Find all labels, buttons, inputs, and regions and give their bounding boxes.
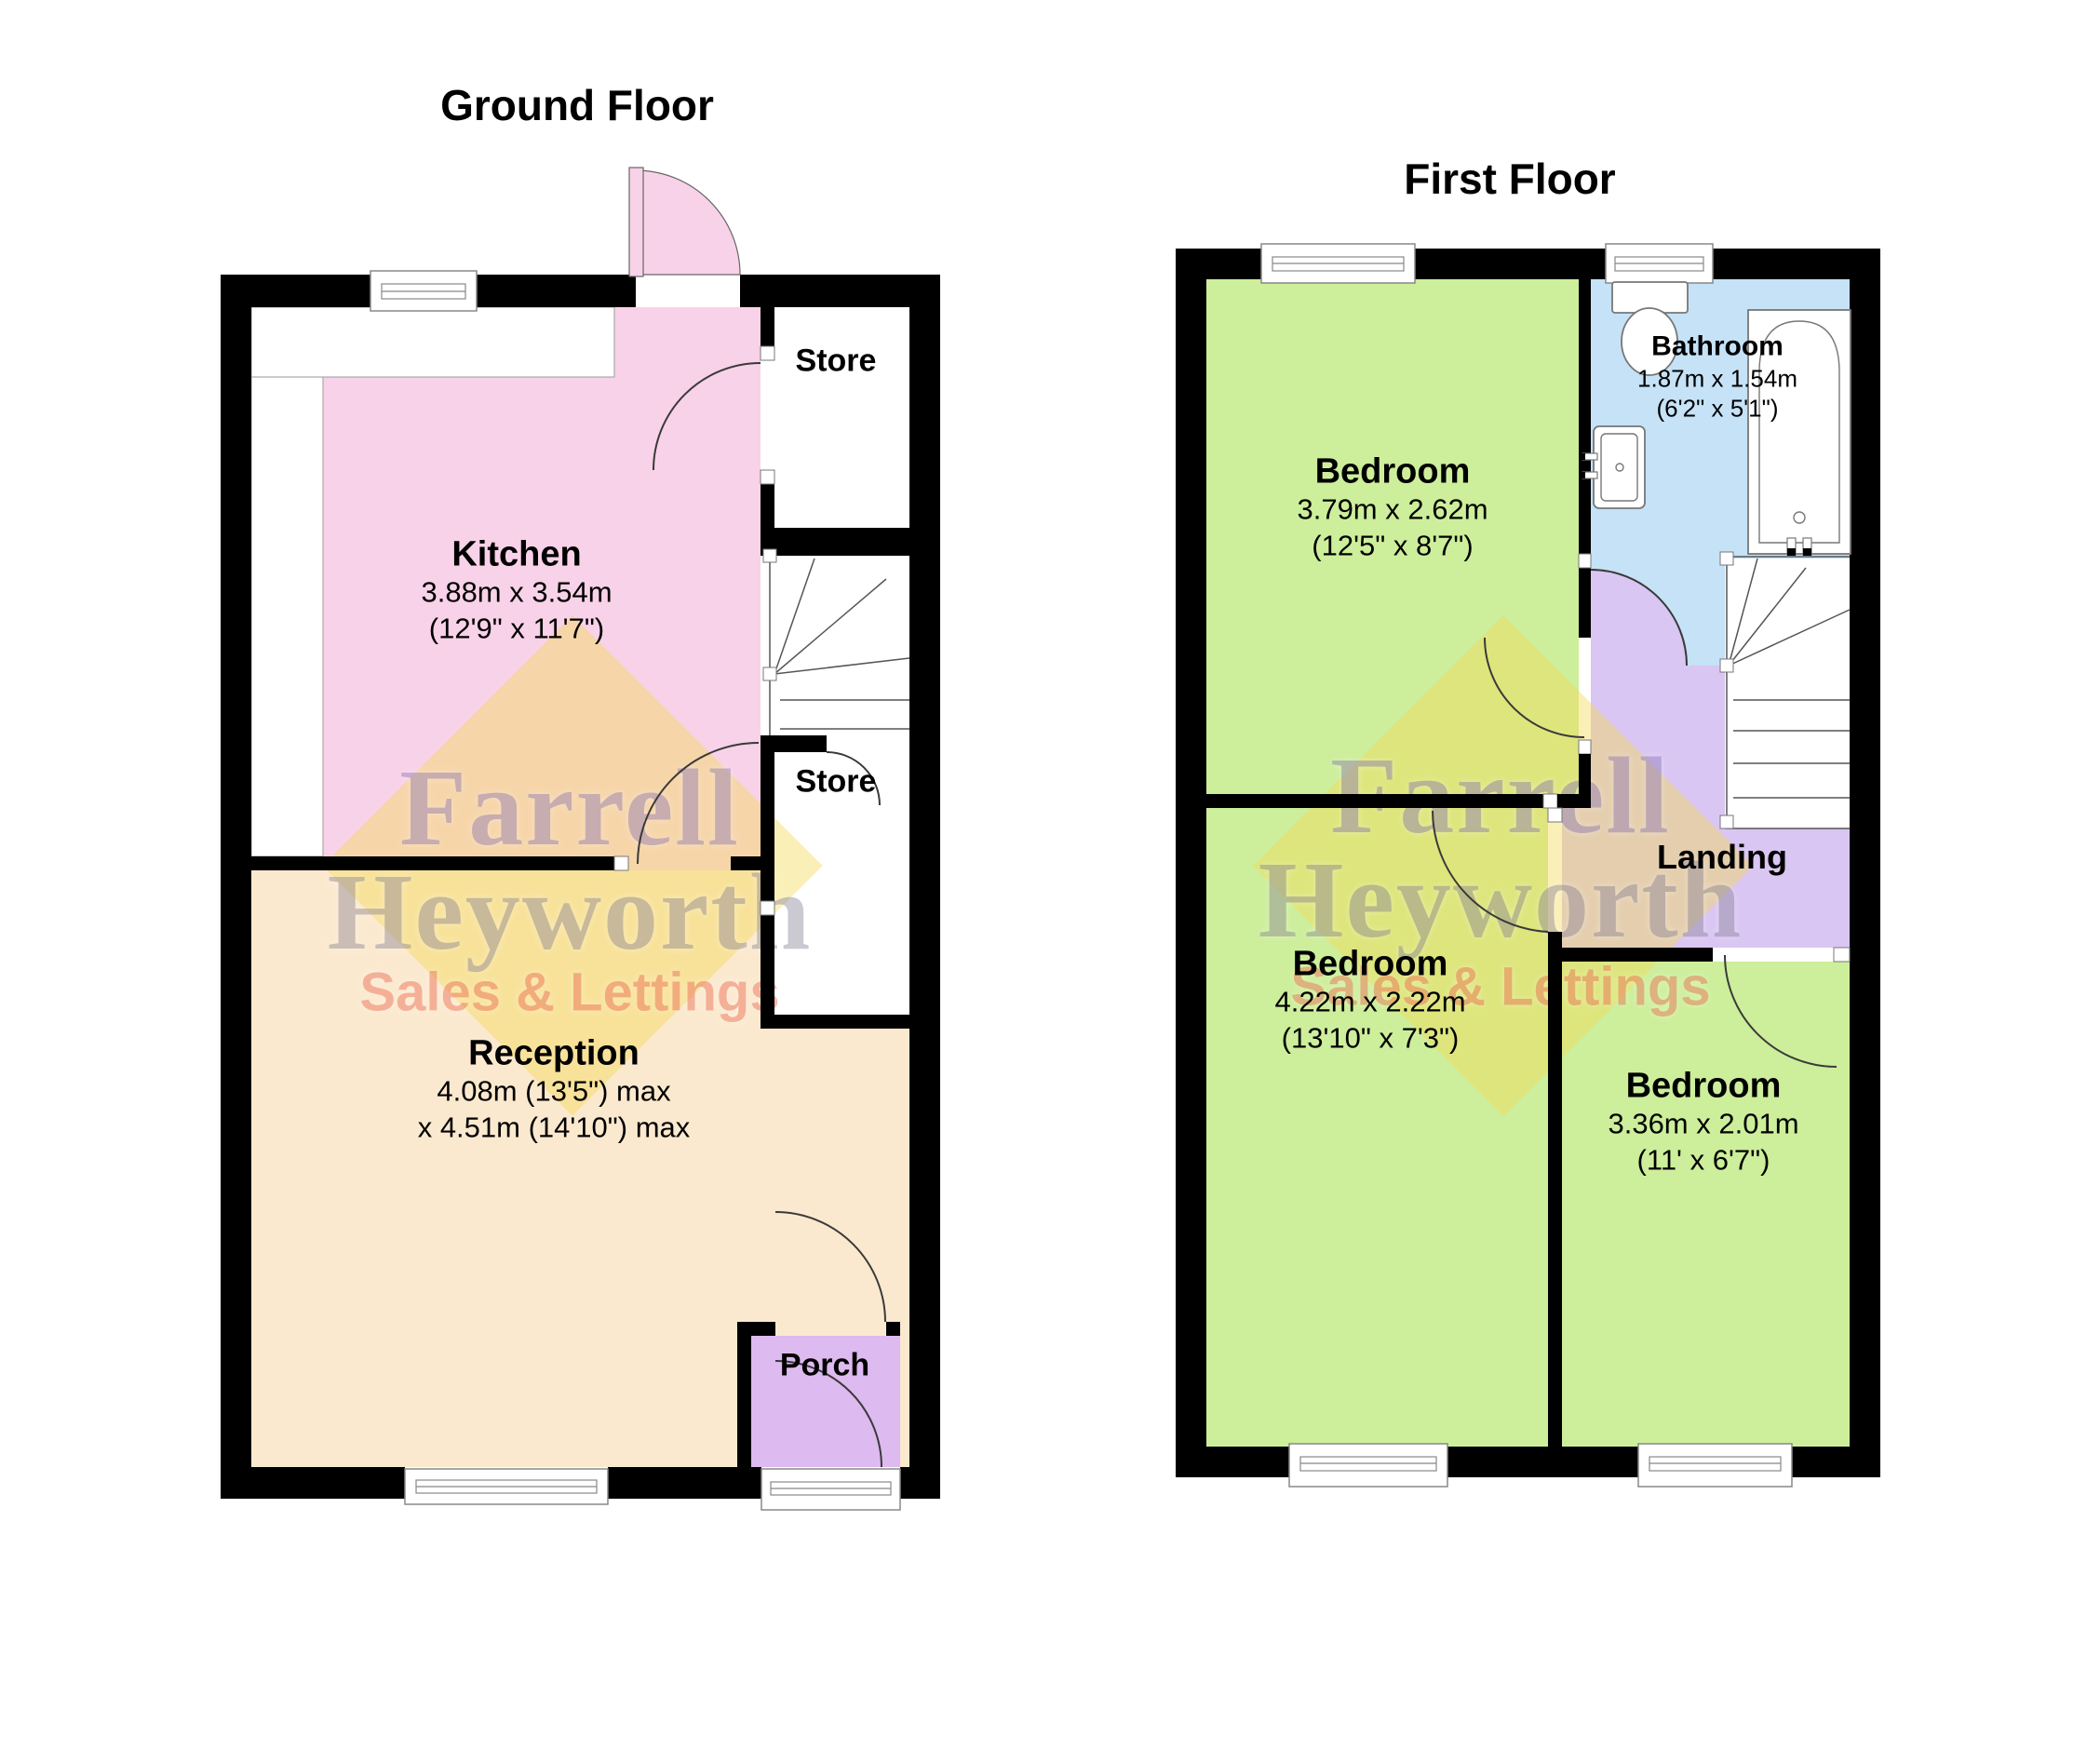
bedroom2-label: Bedroom 4.22m x 2.22m (13'10" x 7'3") bbox=[1274, 944, 1465, 1057]
porch-label: Porch bbox=[780, 1347, 869, 1383]
ground-floor-title: Ground Floor bbox=[440, 80, 714, 130]
store-top-label: Store bbox=[796, 343, 877, 379]
labels-layer: Ground Floor First Floor Kitchen 3.88m x… bbox=[0, 0, 2100, 1764]
bedroom1-label: Bedroom 3.79m x 2.62m (12'5" x 8'7") bbox=[1297, 451, 1487, 564]
bedroom3-label: Bedroom 3.36m x 2.01m (11' x 6'7") bbox=[1608, 1066, 1798, 1178]
store-understairs-label: Store bbox=[796, 763, 877, 800]
reception-label: Reception 4.08m (13'5") max x 4.51m (14'… bbox=[418, 1033, 691, 1146]
first-floor-title: First Floor bbox=[1404, 154, 1615, 204]
landing-label: Landing bbox=[1657, 838, 1787, 877]
kitchen-label: Kitchen 3.88m x 3.54m (12'9" x 11'7") bbox=[421, 534, 612, 647]
bathroom-label: Bathroom 1.87m x 1.54m (6'2" x 5'1") bbox=[1637, 330, 1797, 423]
floorplan-canvas: Farrell Heyworth Sales & Lettings Farrel… bbox=[0, 0, 2100, 1764]
